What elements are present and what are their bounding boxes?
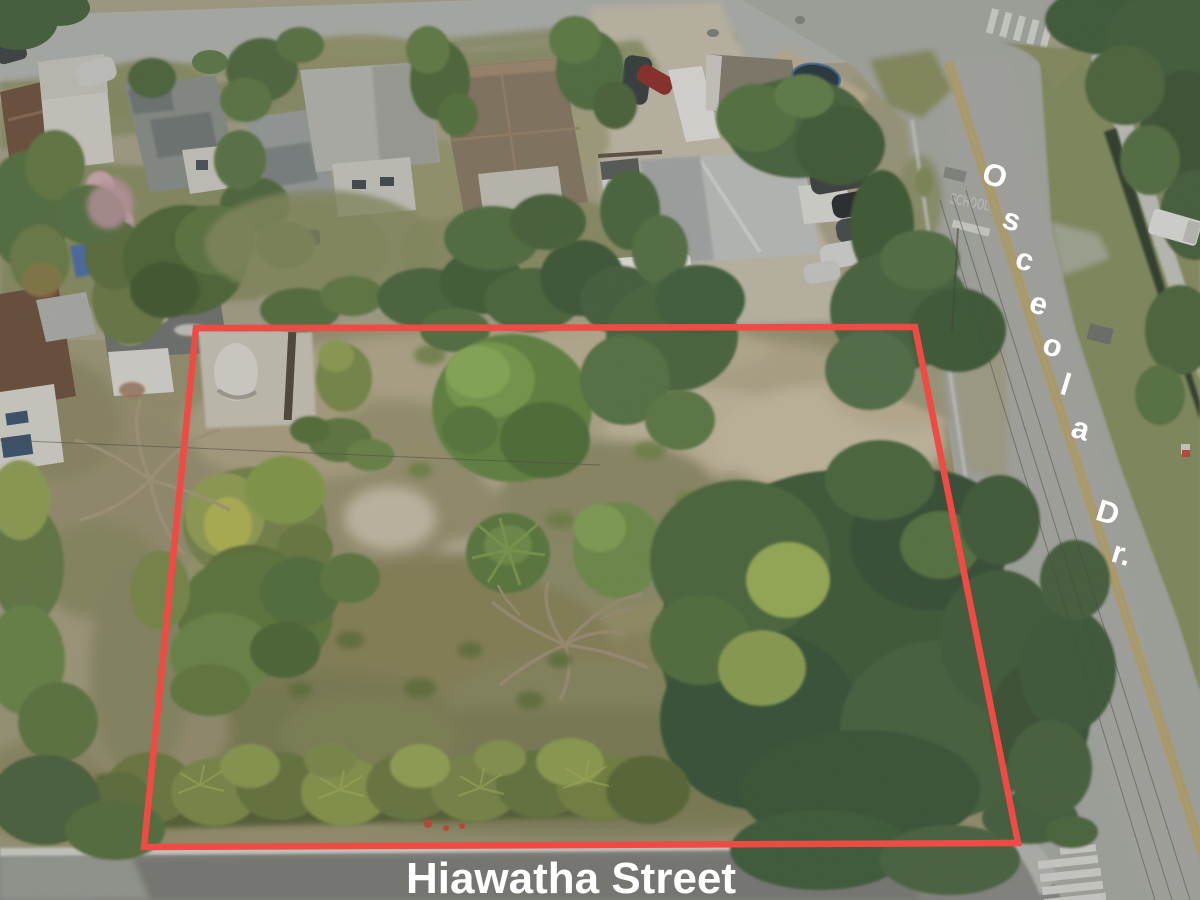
svg-text:Hiawatha Street: Hiawatha Street xyxy=(406,854,736,900)
